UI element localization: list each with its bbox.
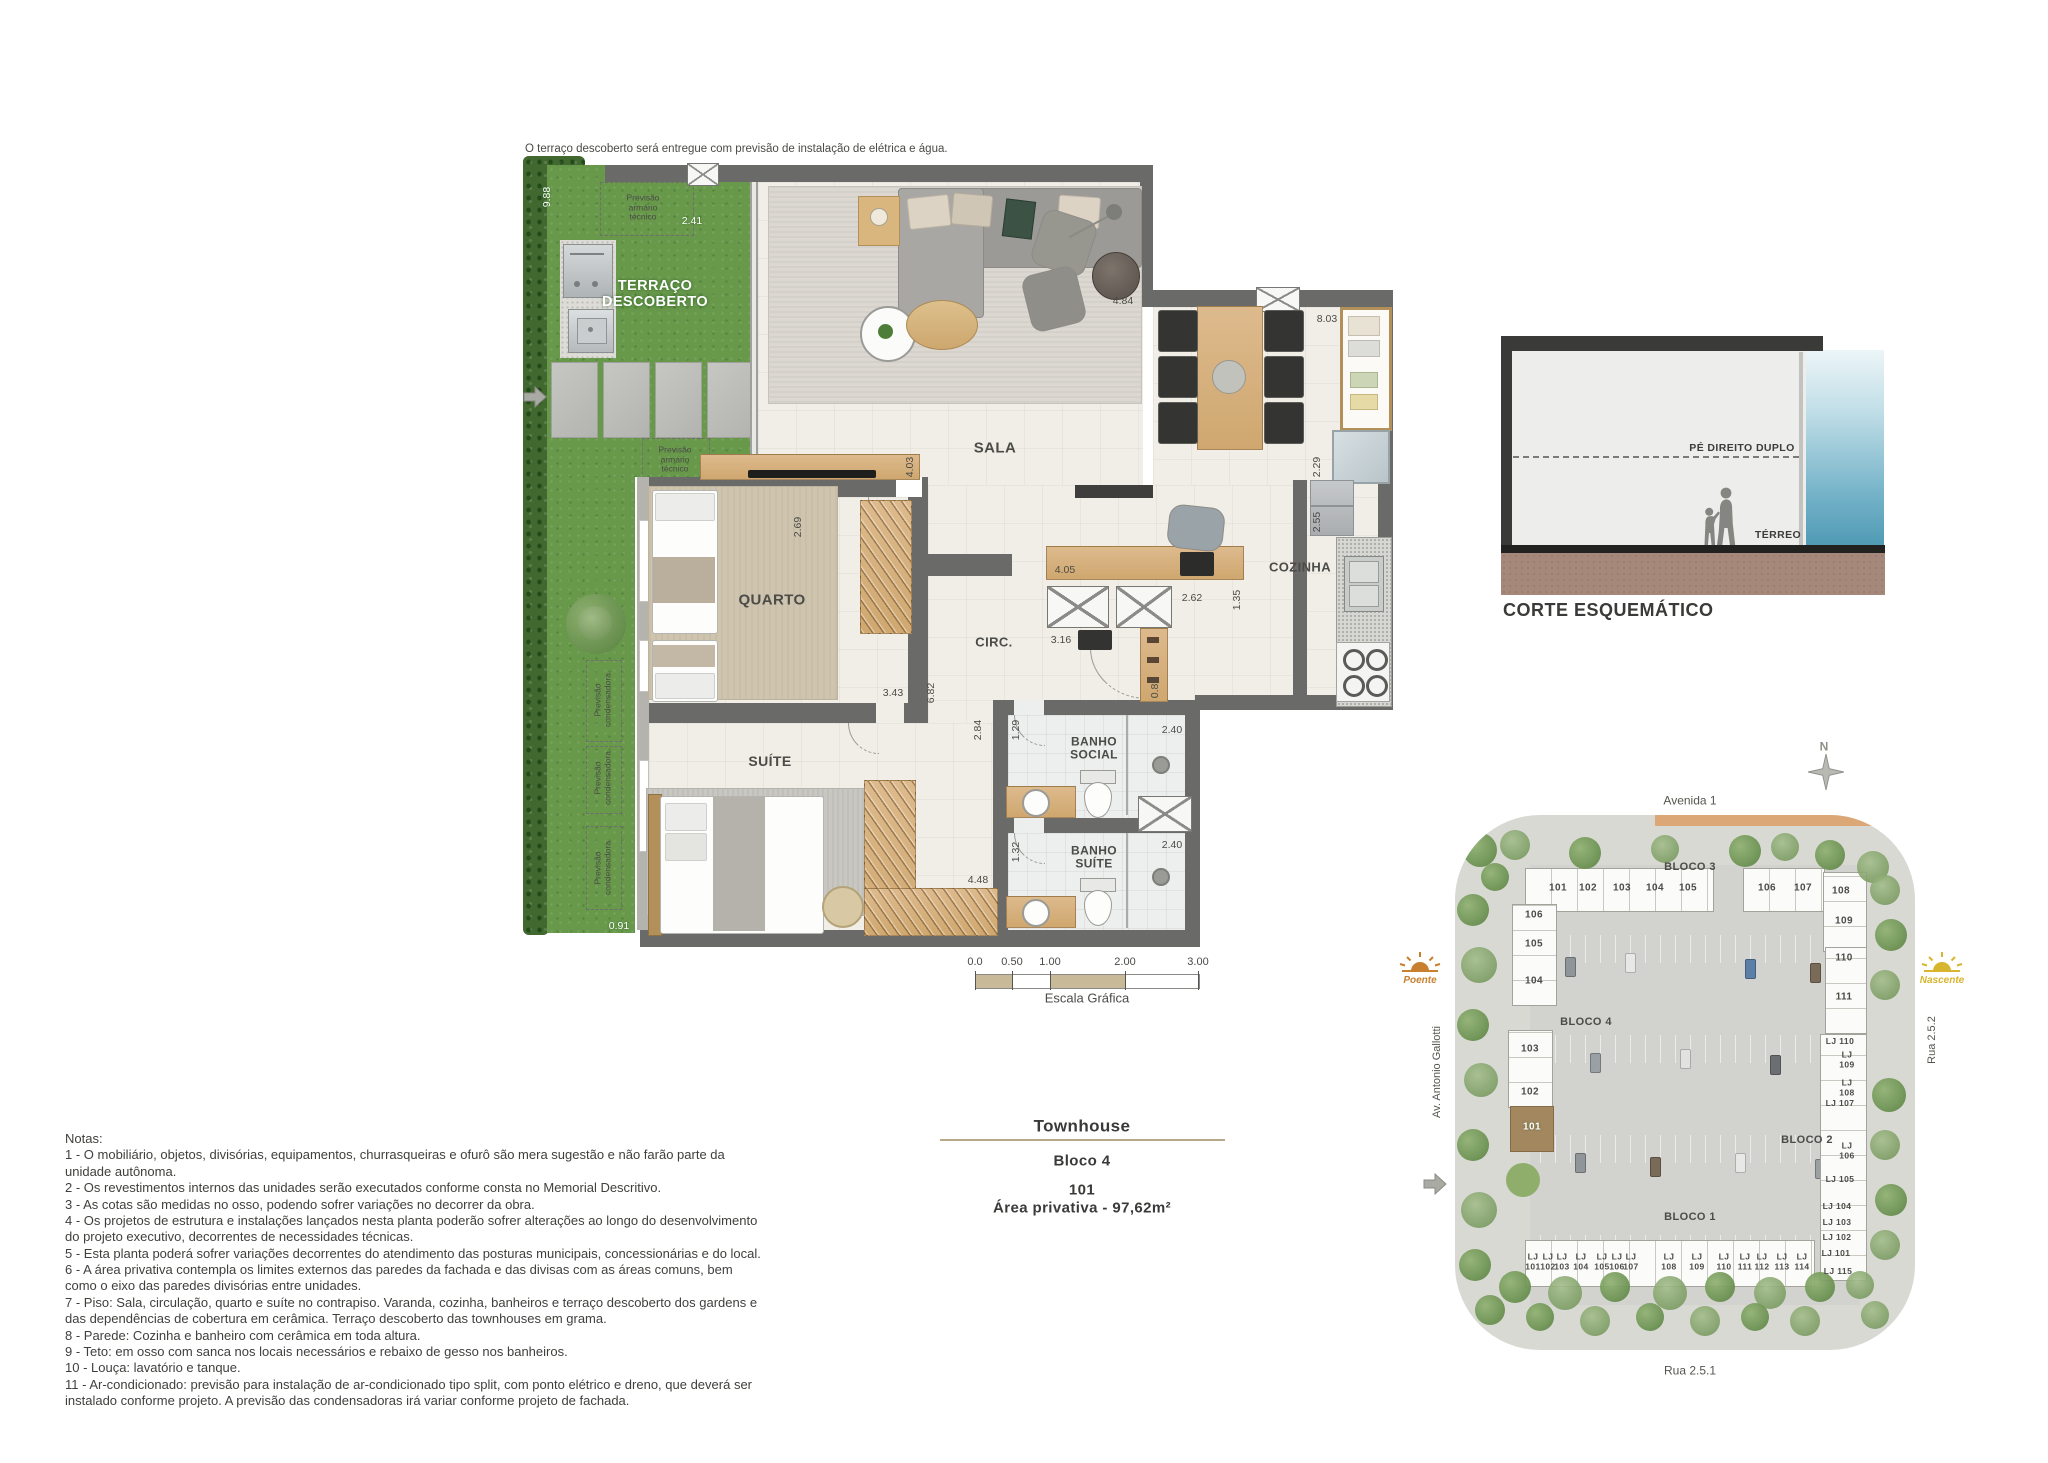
tree-icon [1481, 863, 1509, 891]
kitchen-glass-door [1332, 430, 1390, 484]
bloco3-building [1743, 868, 1825, 912]
unit-label: 103 [1613, 882, 1631, 893]
tree-icon [1457, 1129, 1489, 1161]
unit-label: LJ 105 [1594, 1252, 1609, 1271]
tv-panel [1075, 485, 1153, 498]
dining-chair [1264, 402, 1304, 444]
note-item: 10 - Louça: lavatório e tanque. [65, 1360, 765, 1376]
entry-arrow-icon [522, 385, 548, 409]
note-item: 7 - Piso: Sala, circulação, quarto e suí… [65, 1295, 765, 1328]
room-label-banho-suite: BANHO SUÍTE [1071, 845, 1117, 872]
corte-floor-slab [1501, 545, 1885, 553]
corte-terreo-label: TÉRREO [1755, 530, 1801, 542]
corner-building [1823, 872, 1867, 952]
dimension-label: 4.48 [968, 875, 988, 887]
bloco-label: BLOCO 1 [1664, 1211, 1716, 1223]
scale-tick-mark [975, 971, 976, 990]
sofa-cushion [906, 194, 951, 230]
terrace-glass-wall [750, 182, 758, 477]
scale-tick-label: 0.0 [967, 956, 982, 968]
dining-chair [1158, 310, 1198, 352]
corte-pe-direito-label: PÉ DIREITO DUPLO [1689, 443, 1794, 455]
room-label-quarto: QUARTO [738, 593, 805, 610]
unit-label: LJ 104 [1823, 1202, 1852, 1212]
corte-wall-left [1501, 336, 1512, 548]
unit-label: LJ 110 [1826, 1037, 1854, 1047]
unit-label: 104 [1646, 882, 1664, 893]
coffee-table-oval [906, 300, 978, 350]
annotation-condensadora: Previsão condensadora [593, 665, 612, 735]
dining-chair [1264, 310, 1304, 352]
car-icon [1590, 1053, 1601, 1073]
unit-label: 110 [1835, 952, 1852, 963]
bed-double [660, 796, 824, 934]
notes-list: 1 - O mobiliário, objetos, divisórias, e… [65, 1147, 765, 1409]
dimension-label: 2.69 [793, 517, 805, 537]
scale-segment [1012, 974, 1052, 989]
wall-quarto-suite [645, 703, 910, 723]
note-item: 5 - Esta planta poderá sofrer variações … [65, 1246, 765, 1262]
annotation-armario-tecnico: Previsão armário técnico [626, 194, 659, 223]
tree-icon [1875, 919, 1907, 951]
dimension-label: 3.43 [883, 688, 903, 700]
corte-dashed-line [1513, 456, 1799, 458]
street-label-avenida: Avenida 1 [1663, 794, 1716, 807]
car-icon [1735, 1153, 1746, 1173]
car-icon [1745, 959, 1756, 979]
corte-title: CORTE ESQUEMÁTICO [1503, 600, 1714, 621]
dining-chair [1158, 402, 1198, 444]
kitchen-sink [1344, 556, 1384, 612]
door-gap [1014, 818, 1044, 833]
dimension-label: 9.88 [542, 187, 554, 207]
unit-label: LJ 109 [1689, 1252, 1704, 1271]
book-icon [1002, 198, 1036, 239]
room-label-banho-social: BANHO SOCIAL [1070, 736, 1118, 763]
tree-icon [1461, 947, 1497, 983]
unit-label: LJ 113 [1775, 1252, 1790, 1271]
tree-icon [1790, 1306, 1820, 1336]
tree-icon [1870, 1230, 1900, 1260]
door-gap [876, 703, 904, 723]
dimension-label: 4.84 [1113, 296, 1133, 308]
tree-icon [1464, 1063, 1498, 1097]
car-icon [1625, 953, 1636, 973]
note-item: 4 - Os projetos de estrutura e instalaçõ… [65, 1213, 765, 1246]
scale-segment [1125, 974, 1200, 989]
room-label-cozinha: COZINHA [1269, 561, 1331, 576]
scale-tick-mark [1198, 971, 1199, 990]
sun-poente-icon [1398, 948, 1442, 974]
dimension-label: 2.40 [1162, 725, 1182, 737]
unit-label: 111 [1836, 991, 1853, 1002]
title-unit: 101 [1069, 1183, 1095, 1200]
corte-window-frame [1799, 352, 1803, 545]
plant-icon [878, 324, 893, 339]
tree-icon [1870, 1130, 1900, 1160]
scale-tick-mark [1050, 971, 1051, 990]
scale-tick-label: 0.50 [1001, 956, 1022, 968]
bed-single [652, 640, 718, 702]
room-label-circ: CIRC. [975, 636, 1012, 651]
street-label-rua251: Rua 2.5.1 [1664, 1364, 1716, 1377]
unit-label: 102 [1521, 1086, 1539, 1097]
people-silhouette-icon [1700, 487, 1742, 549]
tree-icon [1475, 1295, 1505, 1325]
dimension-label: 2.29 [1312, 457, 1324, 477]
tree-icon [1636, 1303, 1664, 1331]
bloco-label: BLOCO 2 [1781, 1134, 1833, 1146]
dining-chair [1264, 356, 1304, 398]
tree-icon [1600, 1272, 1630, 1302]
dimension-label: 1.32 [1011, 842, 1023, 862]
title-divider [940, 1139, 1225, 1141]
tree-icon [1499, 1271, 1531, 1303]
unit-label: LJ 107 [1826, 1099, 1855, 1109]
sun-poente-label: Poente [1403, 975, 1436, 986]
annotation-condensadora: Previsão condensadora [593, 746, 612, 810]
unit-label: LJ 115 [1824, 1267, 1852, 1277]
tree-icon [1457, 1009, 1489, 1041]
paver [655, 362, 702, 438]
unit-label: LJ 101 [1525, 1252, 1540, 1271]
floor-lamp-head [1106, 204, 1122, 220]
sun-nascente-label: Nascente [1920, 975, 1964, 986]
car-icon [1680, 1049, 1691, 1069]
unit-label: LJ 103 [1823, 1218, 1852, 1228]
terrace-note: O terraço descoberto será entregue com p… [525, 143, 948, 155]
shaft-box [1138, 796, 1192, 832]
unit-label: 105 [1679, 882, 1697, 893]
room-label-sala: SALA [974, 441, 1016, 458]
desk [1046, 546, 1244, 580]
compass-icon [1808, 754, 1844, 790]
shower-head-icon [1152, 756, 1170, 774]
car-icon [1810, 963, 1821, 983]
suite-closet-horizontal [864, 888, 998, 936]
unit-label: 106 [1758, 882, 1776, 893]
desk-chair [1166, 503, 1226, 553]
note-item: 9 - Teto: em osso com sanca nos locais n… [65, 1344, 765, 1360]
laptop-icon [1180, 552, 1214, 576]
room-label-terraco: TERRAÇO DESCOBERTO [602, 278, 708, 310]
marble-table [1092, 252, 1140, 300]
door-gap [896, 477, 922, 497]
scale-tick-label: 1.00 [1039, 956, 1060, 968]
scale-tick-mark [1125, 971, 1126, 990]
sun-nascente-icon [1920, 948, 1964, 974]
tree-icon [1729, 835, 1761, 867]
tv-icon [748, 470, 876, 478]
unit-label: LJ 110 [1717, 1252, 1732, 1271]
unit-label: LJ 108 [1839, 1078, 1854, 1097]
stove [1336, 642, 1390, 702]
unit-label: 104 [1525, 975, 1543, 986]
tree-icon [1870, 875, 1900, 905]
bed-single [652, 490, 718, 634]
door-gap [1014, 700, 1044, 715]
tree-icon [1651, 835, 1679, 863]
unit-label: LJ 109 [1839, 1050, 1854, 1069]
tree-icon [1771, 833, 1799, 861]
annotation-armario-tecnico: Previsão armário técnico [658, 446, 691, 475]
plaza-circle [1506, 1163, 1540, 1197]
wall-kitchen-circ [1293, 480, 1307, 695]
title-bloco: Bloco 4 [1054, 1154, 1111, 1171]
basin [1022, 899, 1050, 927]
tree-icon [1569, 837, 1601, 869]
unit-label: LJ 114 [1795, 1252, 1810, 1271]
tree-icon [1526, 1303, 1554, 1331]
notes-heading: Notas: [65, 1131, 765, 1147]
dimension-label: 6.82 [926, 683, 938, 703]
room-label-suite: SUÍTE [748, 754, 791, 770]
scale-tick-label: 2.00 [1114, 956, 1135, 968]
unit-label: LJ 112 [1755, 1252, 1770, 1271]
notes-block: Notas: 1 - O mobiliário, objetos, divisó… [65, 1131, 765, 1409]
corte-ground [1501, 553, 1885, 595]
tree-icon [1741, 1303, 1769, 1331]
site-parking [1530, 865, 1860, 1305]
title-type: Townhouse [1034, 1116, 1131, 1135]
dimension-label: 8.03 [1317, 314, 1337, 326]
note-item: 8 - Parede: Cozinha e banheiro com cerâm… [65, 1328, 765, 1344]
compass-n-label: N [1820, 740, 1829, 753]
tree-icon [1548, 1276, 1582, 1310]
title-area: Área privativa - 97,62m² [993, 1201, 1171, 1218]
unit-label: 109 [1835, 915, 1853, 926]
paver [603, 362, 650, 438]
tree-icon [1870, 970, 1900, 1000]
tree-icon [1872, 1078, 1906, 1112]
dimension-label: 2.55 [1312, 512, 1324, 532]
annotation-condensadora: Previsão condensadora [593, 833, 612, 903]
tree-icon [1690, 1306, 1720, 1336]
paver [707, 362, 751, 438]
site-arrow-icon [1422, 1172, 1448, 1196]
dimension-label: 1.35 [1232, 590, 1244, 610]
washer-box [1116, 586, 1172, 628]
dimension-label: 2.84 [973, 720, 985, 740]
tree-icon [1459, 1249, 1491, 1281]
note-item: 3 - As cotas são medidas no osso, podend… [65, 1197, 765, 1213]
unit-label: 108 [1832, 885, 1850, 896]
page: O terraço descoberto será entregue com p… [0, 0, 2048, 1463]
corte-roof [1501, 336, 1823, 351]
dining-chair [1158, 356, 1198, 398]
note-item: 2 - Os revestimentos internos das unidad… [65, 1180, 765, 1196]
garden-sink-icon [568, 309, 614, 353]
sofa-cushion [951, 192, 994, 227]
corte-sky [1806, 350, 1884, 547]
unit-label: 103 [1521, 1043, 1539, 1054]
unit-label: LJ 104 [1573, 1252, 1588, 1271]
shaft-box [687, 163, 719, 186]
unit-label: LJ 103 [1554, 1252, 1569, 1271]
unit-label: 102 [1579, 882, 1597, 893]
note-item: 11 - Ar-condicionado: previsão para inst… [65, 1377, 765, 1410]
dimension-label: 4.05 [1055, 565, 1075, 577]
shower-partition [1126, 833, 1128, 928]
bush-icon [578, 606, 612, 640]
scale-tick-mark [1012, 971, 1013, 990]
unit-label: LJ 106 [1839, 1141, 1854, 1160]
unit-label: 107 [1794, 882, 1812, 893]
car-icon [1575, 1153, 1586, 1173]
note-item: 1 - O mobiliário, objetos, divisórias, e… [65, 1147, 765, 1180]
dimension-label: 0.89 [1150, 678, 1162, 698]
hedge [523, 156, 549, 935]
scale-segment [975, 974, 1014, 989]
unit-label: 101 [1549, 882, 1567, 893]
unit-label: 105 [1525, 938, 1543, 949]
wardrobe [860, 500, 912, 634]
tree-icon [1461, 1192, 1497, 1228]
car-icon [1650, 1157, 1661, 1177]
unit-label: 101 [1523, 1121, 1541, 1132]
washer-box [1047, 586, 1109, 628]
note-item: 6 - A área privativa contempla os limite… [65, 1262, 765, 1295]
dimension-label: 4.03 [905, 457, 917, 477]
car-icon [1770, 1055, 1781, 1075]
paver [551, 362, 598, 438]
tree-icon [1500, 830, 1530, 860]
tree-icon [1705, 1272, 1735, 1302]
tree-icon [1457, 894, 1489, 926]
shower-partition [1126, 715, 1128, 815]
bloco-label: BLOCO 4 [1560, 1016, 1612, 1028]
dimension-label: 2.40 [1162, 840, 1182, 852]
site-sidewalk-strip [1655, 815, 1905, 826]
shower-head-icon [1152, 868, 1170, 886]
unit-label: 106 [1525, 909, 1543, 920]
unit-label: LJ 102 [1823, 1233, 1852, 1243]
tree-icon [1580, 1306, 1610, 1336]
pantry [1340, 307, 1392, 431]
scale-segment [1050, 974, 1127, 989]
dimension-label: 3.16 [1051, 635, 1071, 647]
tree-icon [1815, 840, 1845, 870]
street-label-rua252: Rua 2.5.2 [1926, 1016, 1938, 1064]
unit-label: LJ 101 [1822, 1249, 1851, 1259]
console [1078, 630, 1112, 650]
car-icon [1565, 957, 1576, 977]
unit-label: LJ 111 [1738, 1252, 1752, 1271]
tree-icon [1861, 1301, 1889, 1329]
dimension-label: 2.41 [682, 216, 702, 228]
unit-label: LJ 105 [1826, 1175, 1855, 1185]
dimension-label: 0.91 [609, 921, 629, 933]
scale-label: Escala Gráfica [1045, 992, 1130, 1007]
basin [1022, 789, 1050, 817]
scale-tick-label: 3.00 [1187, 956, 1208, 968]
unit-label: LJ 107 [1623, 1252, 1638, 1271]
dimension-label: 1.29 [1011, 720, 1023, 740]
bloco-label: BLOCO 3 [1664, 861, 1716, 873]
unit-label: LJ 108 [1661, 1252, 1676, 1271]
dimension-label: 2.62 [1182, 593, 1202, 605]
tree-icon [1463, 833, 1497, 867]
wall-circ-stub [920, 554, 1012, 576]
table-lamp-icon [870, 208, 888, 226]
street-label-gallotti: Av. Antonio Gallotti [1431, 1026, 1443, 1118]
tree-icon [1875, 1184, 1907, 1216]
pouf-icon [822, 886, 864, 928]
dining-centerpiece [1212, 360, 1246, 394]
